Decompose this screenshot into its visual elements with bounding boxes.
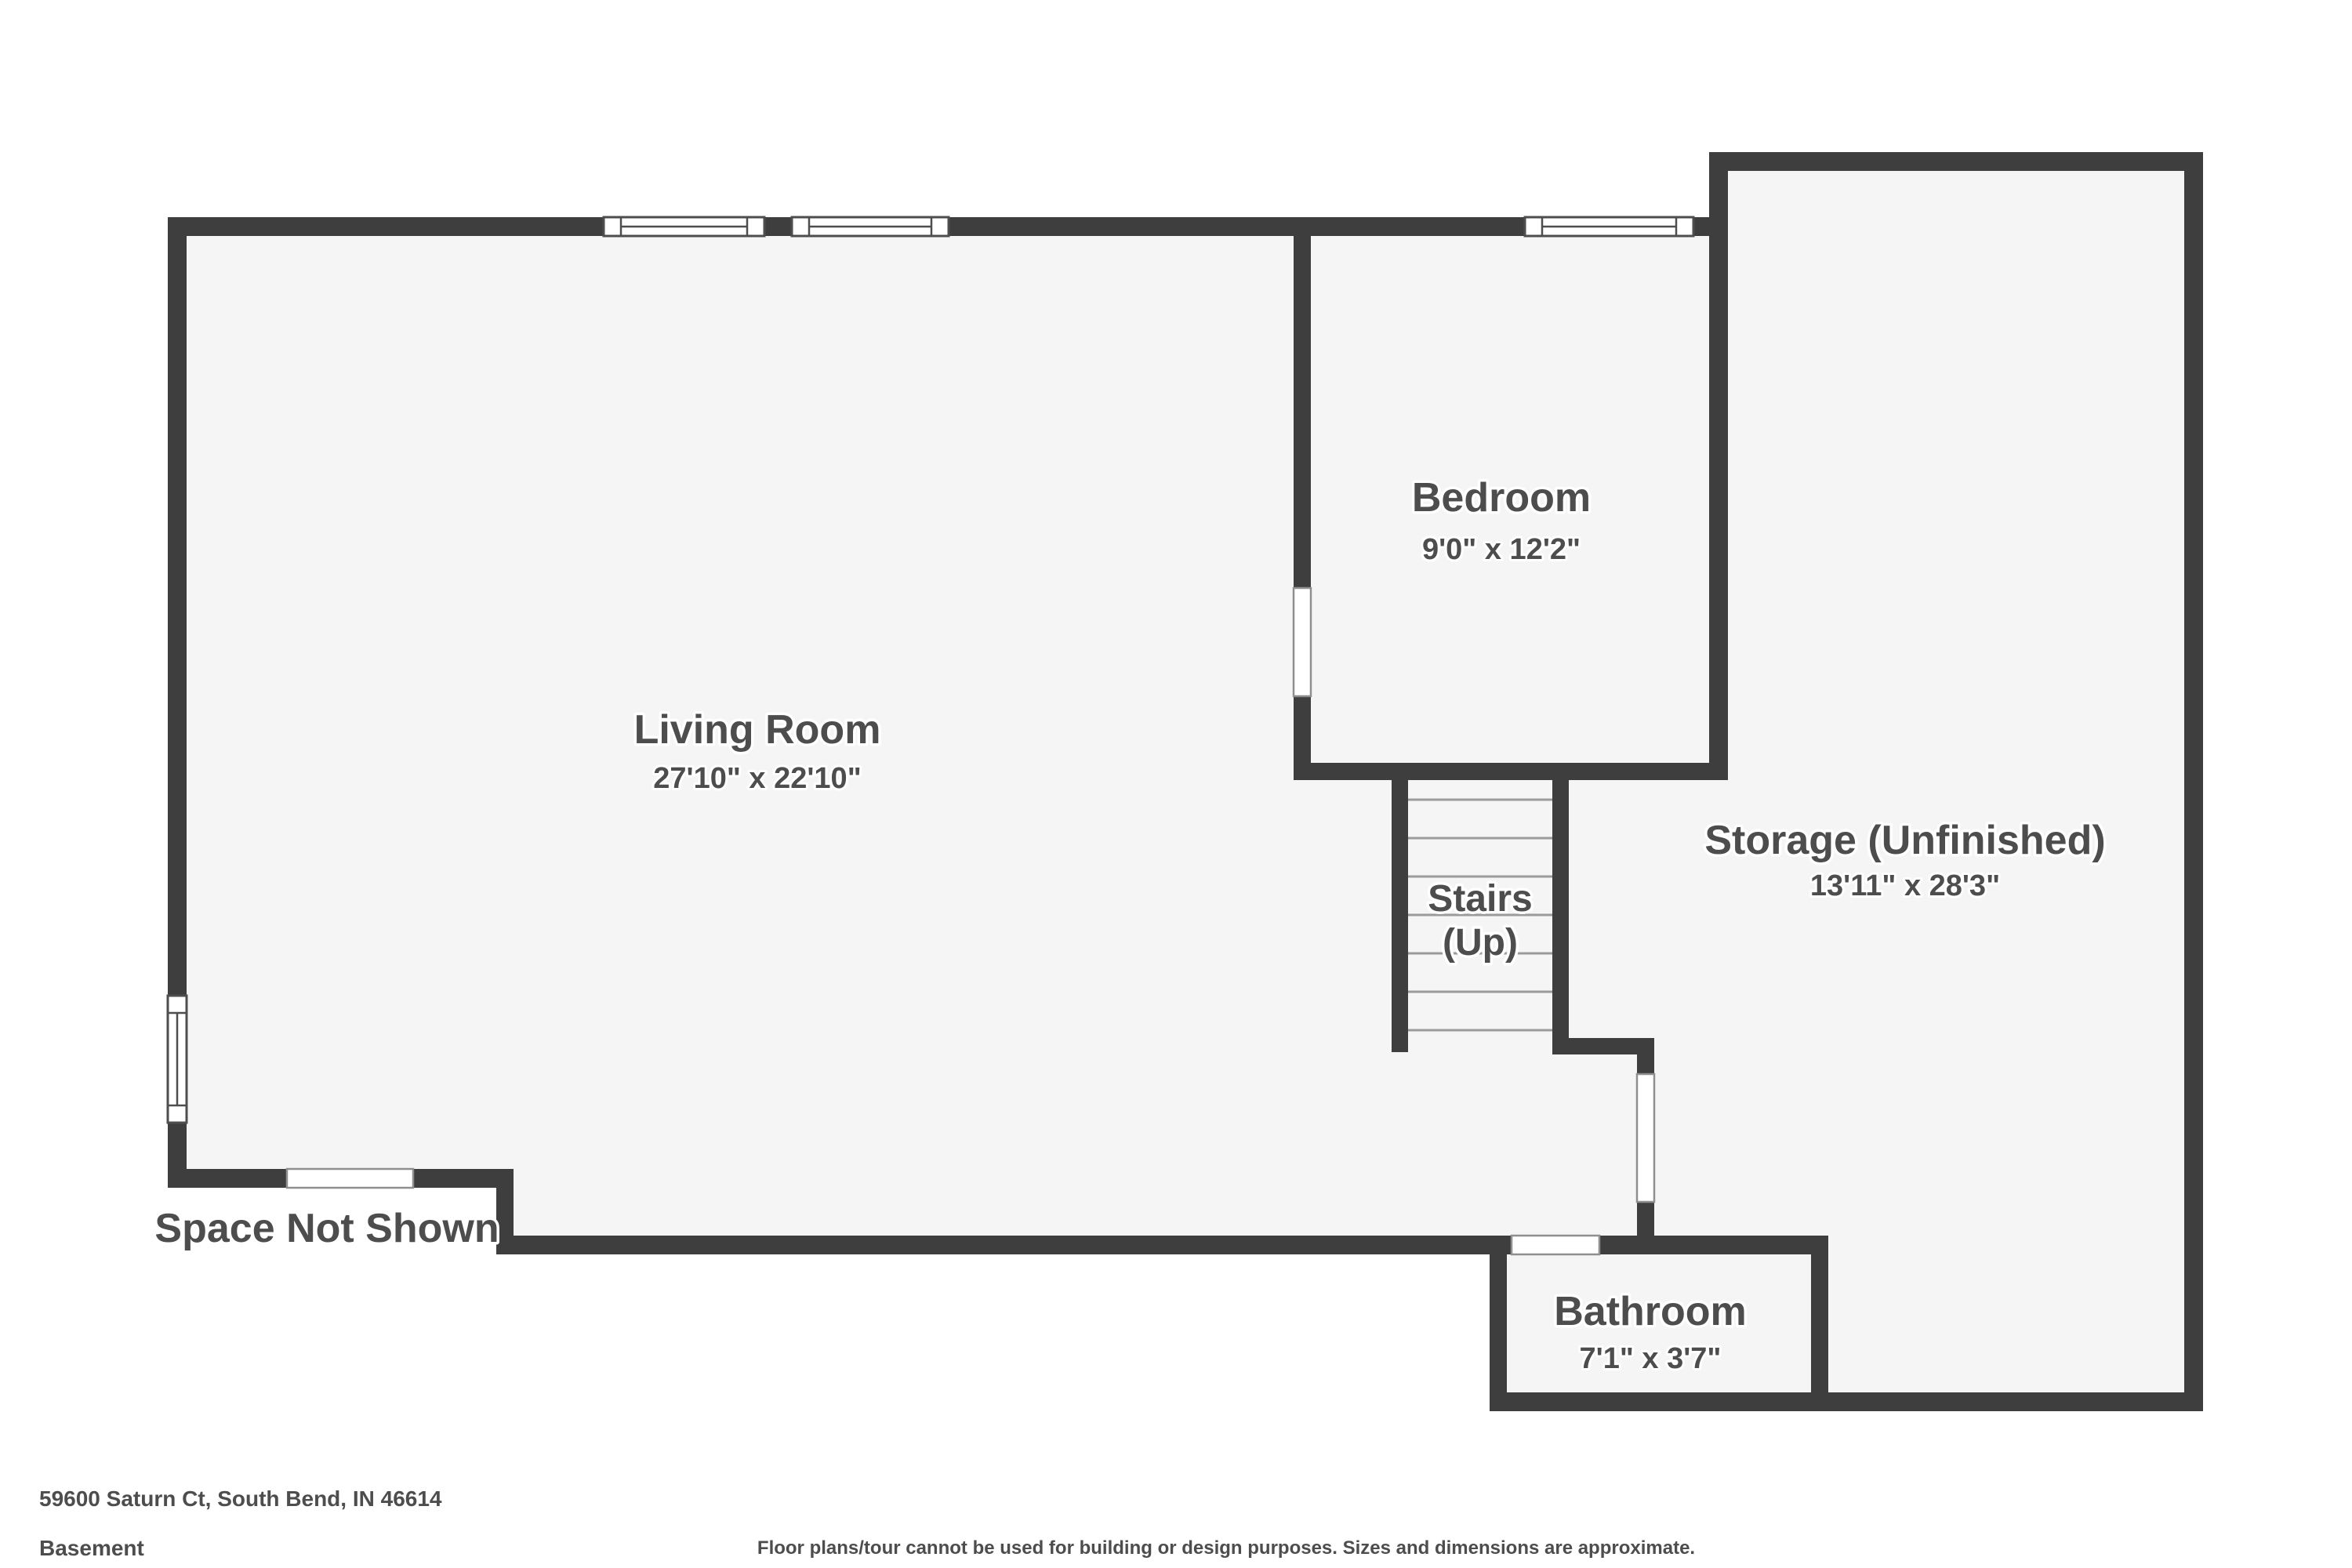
window-bedroom [1525,217,1693,236]
floor-plan-drawing: Living Room 27'10" x 22'10" Bedroom 9'0"… [0,0,2352,1568]
wall-top-segment [168,217,604,236]
floor-main [168,217,1728,1188]
footer-disclaimer: Floor plans/tour cannot be used for buil… [757,1537,1695,1559]
wall-storage-right [2184,152,2203,1411]
bathroom-label: Bathroom [1554,1289,1747,1334]
wall-bathroom-left [1490,1236,1507,1411]
space-not-shown-label: Space Not Shown [154,1206,499,1251]
wall-bottom-far [1490,1392,2203,1411]
living-room-label: Living Room [634,707,881,753]
bathroom-dims: 7'1" x 3'7" [1580,1342,1722,1375]
storage-dims: 13'11" x 28'3" [1810,869,2000,902]
bedroom-dims: 9'0" x 12'2" [1422,533,1581,566]
wall-top-segment [764,217,792,236]
footer-address: 59600 Saturn Ct, South Bend, IN 46614 [39,1486,442,1511]
stairs-label: Stairs [1428,878,1532,920]
wall-bathroom-top [1599,1236,1828,1254]
window-living-room-1 [604,217,764,236]
living-room-dims: 27'10" x 22'10" [653,762,861,795]
wall-bathroom-right [1811,1254,1828,1411]
door-opening-space-not-shown [287,1169,413,1188]
wall-corridor-segment [1637,1202,1654,1254]
wall-bedroom-bottom [1294,763,1728,780]
footer: 59600 Saturn Ct, South Bend, IN 46614 Ba… [39,1486,1695,1560]
wall-corridor-segment [1637,1054,1654,1074]
window-living-room-left [168,996,187,1123]
door-opening-corridor [1637,1074,1654,1202]
floor-storage [1709,152,2203,1411]
bedroom-label: Bedroom [1412,475,1591,521]
stairs-direction-label: (Up) [1443,922,1518,964]
floor-plan-page: Living Room 27'10" x 22'10" Bedroom 9'0"… [0,0,2352,1568]
storage-label: Storage (Unfinished) [1704,818,2105,863]
window-living-room-2 [792,217,949,236]
wall-bottom-lower-segment [496,1236,1512,1254]
footer-level: Basement [39,1536,144,1560]
wall-left-segment [168,217,187,996]
wall-stairs-bottom [1569,1038,1654,1054]
wall-bedroom-left-segment [1294,236,1311,588]
door-opening-bathroom [1512,1236,1599,1254]
wall-stairs-left [1392,780,1408,1052]
door-opening-bedroom [1294,588,1311,696]
wall-storage-left [1709,152,1728,780]
wall-storage-top [1709,152,2203,171]
wall-stairs-right [1552,780,1569,1054]
wall-bottom-upper-segment [168,1169,287,1188]
wall-top-segment [949,217,1525,236]
